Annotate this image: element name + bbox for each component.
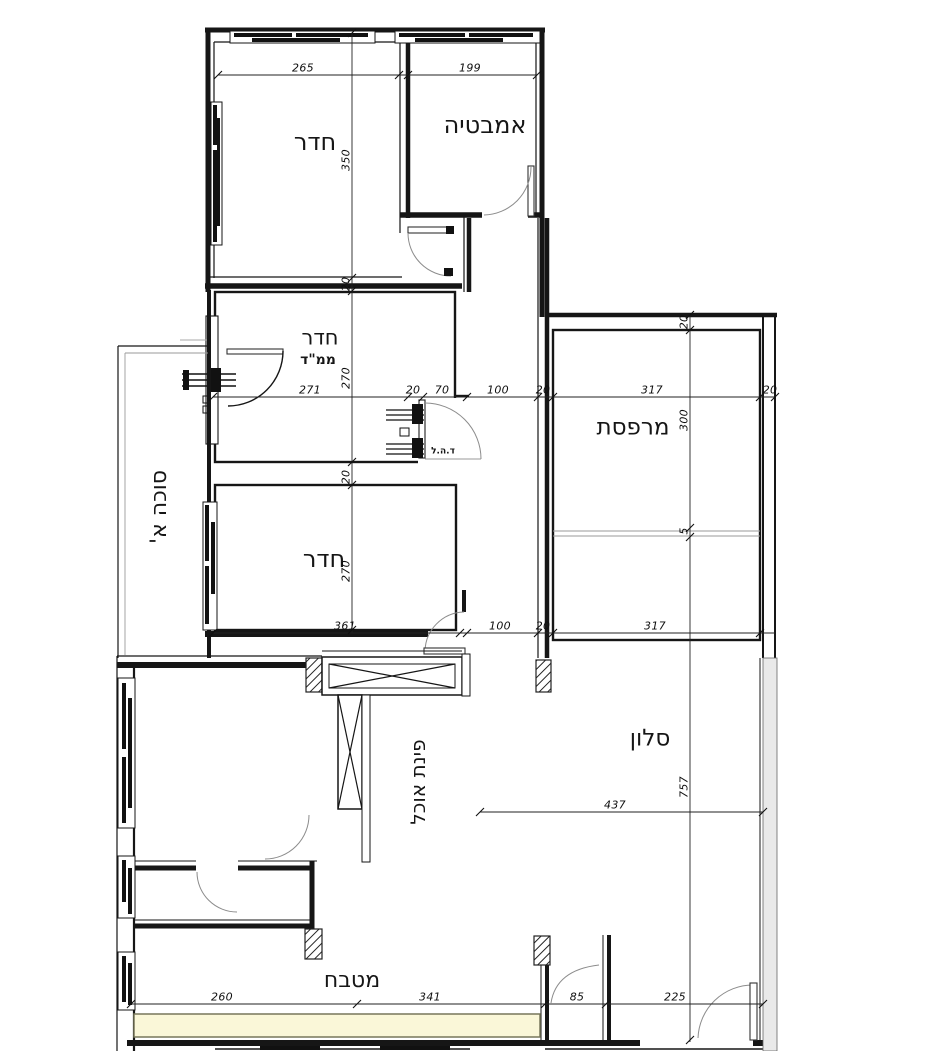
window-left-top-icon (211, 102, 222, 245)
window-top-1-icon (230, 31, 375, 43)
window-left-lower-3-icon (118, 952, 135, 1010)
sukkah-lines (118, 340, 208, 658)
bedroom-mid-door (424, 590, 465, 654)
blast-door (386, 400, 481, 459)
room-outline-mamad (215, 292, 471, 468)
beam-xbox-horizontal (322, 651, 470, 696)
hatched-pier-corridor (536, 660, 551, 692)
dining-door-arc (265, 815, 309, 859)
bottom-left-rooms (134, 861, 317, 929)
hall-door (408, 226, 454, 276)
window-left-lower-2-icon (118, 856, 135, 918)
balcony-walls (548, 315, 777, 658)
main-block-walls (117, 656, 760, 1051)
bathroom-door (484, 166, 534, 216)
floorplan-canvas (0, 0, 945, 1051)
dimension-lines (131, 33, 775, 1042)
entrance-door (698, 983, 757, 1040)
floorplan-page: חדראמבטיהחדרממ"דמרפסתסוכה א'חדרפינת אוכל… (0, 0, 945, 1051)
hatched-pier-b (305, 929, 322, 959)
window-left-mid-icon (203, 502, 217, 630)
hatched-pier-a (306, 658, 322, 692)
party-wall-strip (763, 658, 777, 1051)
room-outline-bedroom-mid (205, 290, 456, 658)
window-top-2-icon (395, 31, 540, 43)
hatched-pier-c (534, 936, 550, 965)
kitchen-counter (134, 1014, 540, 1037)
window-left-lower-1-icon (118, 678, 135, 828)
walls-top-block (205, 28, 545, 317)
mamad-door (227, 349, 283, 406)
small-room-door-arc (197, 872, 237, 912)
neighbor-fragments (215, 1046, 765, 1050)
column-xbox-vertical (338, 695, 370, 862)
closet-walls (541, 935, 609, 1040)
closet-door-arc (551, 965, 599, 1003)
